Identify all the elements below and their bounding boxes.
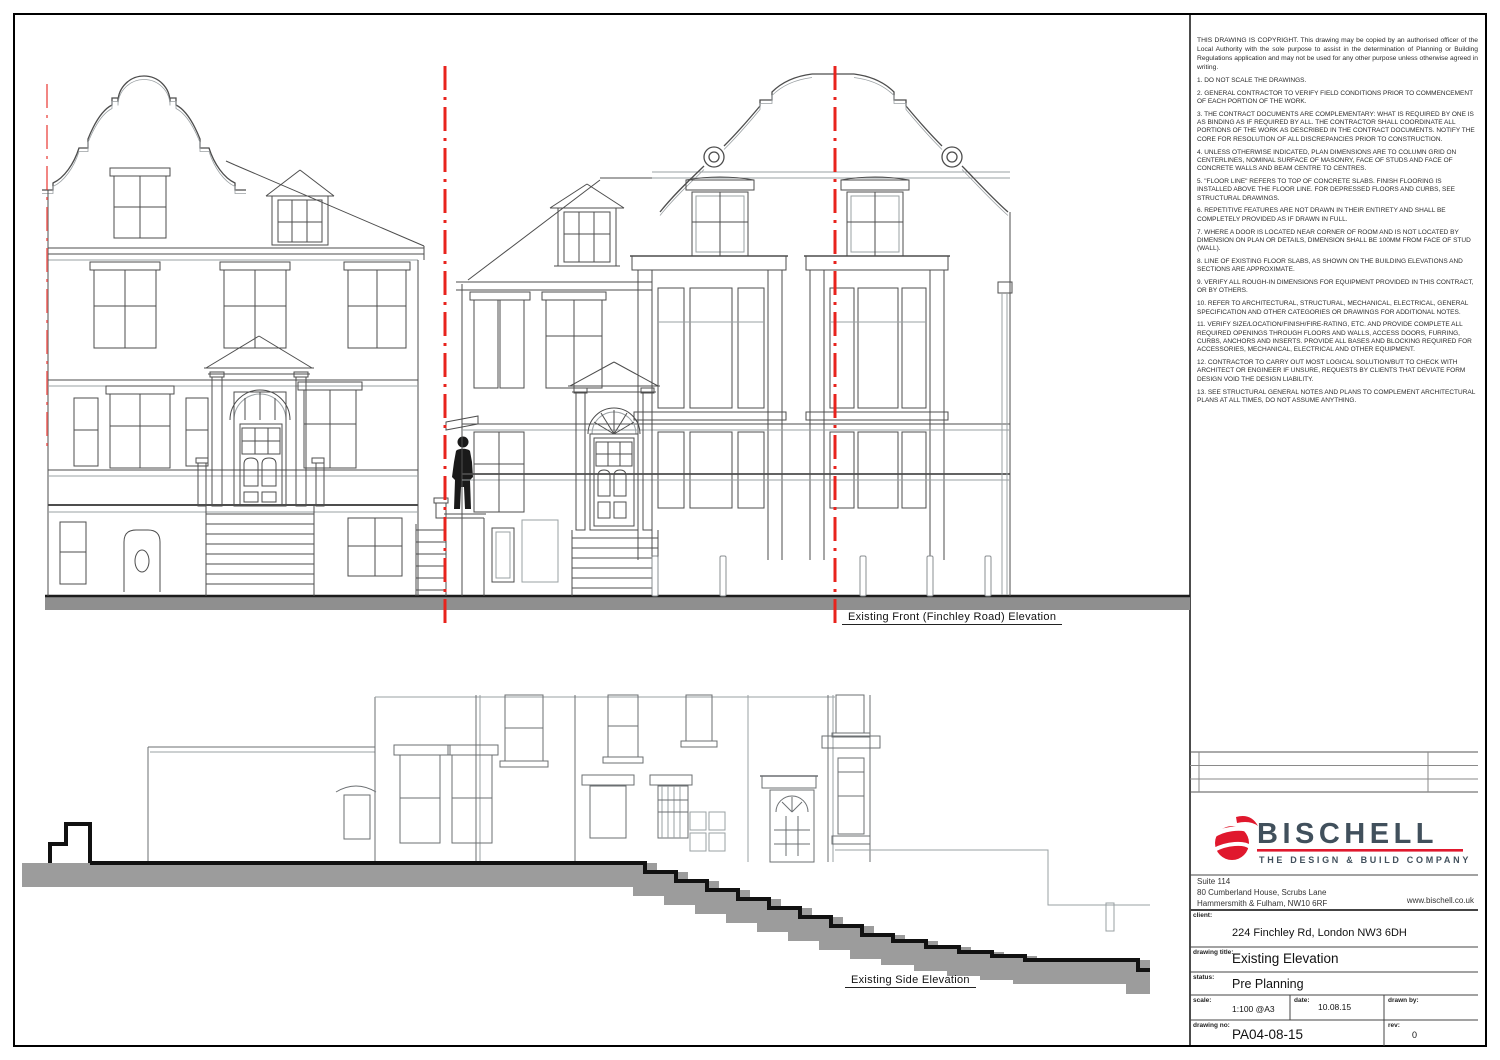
left-building-mid-windows: [74, 382, 362, 468]
status-label: status:: [1193, 974, 1214, 981]
note-item: 9. VERIFY ALL ROUGH-IN DIMENSIONS FOR EQ…: [1197, 279, 1478, 296]
rev-value: 0: [1412, 1030, 1417, 1040]
client-value: 224 Finchley Rd, London NW3 6DH: [1232, 927, 1407, 939]
right-building: [456, 74, 1012, 596]
side-ground-line: [50, 824, 1150, 970]
date-value: 10.08.15: [1318, 1002, 1351, 1012]
front-ground: [45, 596, 1190, 610]
drawing-title-label: drawing title:: [1193, 949, 1233, 956]
bischell-logo-icon: [1213, 816, 1258, 860]
side-elevation-drawing: [22, 695, 1150, 982]
side-elevation-label: Existing Side Elevation: [845, 974, 976, 988]
drawing-no-label: drawing no:: [1193, 1022, 1230, 1029]
drawn-by-label: drawn by:: [1388, 997, 1419, 1004]
company-website: www.bischell.co.uk: [1330, 896, 1474, 905]
status-value: Pre Planning: [1232, 977, 1304, 991]
bischell-logo-tagline: THE DESIGN & BUILD COMPANY: [1259, 855, 1471, 865]
front-elevation-drawing: [42, 66, 1190, 630]
address-line: Suite 114: [1197, 877, 1475, 888]
rev-label: rev:: [1388, 1022, 1400, 1029]
left-building-portico: [196, 336, 324, 596]
drawing-no-value: PA04-08-15: [1232, 1027, 1303, 1042]
note-item: 11. VERIFY SIZE/LOCATION/FINISH/FIRE-RAT…: [1197, 321, 1478, 354]
drawing-title-value: Existing Elevation: [1232, 951, 1339, 966]
red-section-lines: [47, 66, 835, 630]
note-item: 2. GENERAL CONTRACTOR TO VERIFY FIELD CO…: [1197, 90, 1478, 107]
left-building: [42, 76, 424, 596]
copyright-note: THIS DRAWING IS COPYRIGHT. This drawing …: [1197, 37, 1478, 72]
vent-panels: [690, 812, 725, 851]
scale-label: scale:: [1193, 997, 1211, 1004]
scale-value: 1:100 @A3: [1232, 1004, 1275, 1014]
client-label: client:: [1193, 912, 1212, 919]
left-building-upper-windows: [90, 262, 410, 348]
note-item: 3. THE CONTRACT DOCUMENTS ARE COMPLEMENT…: [1197, 111, 1478, 144]
bay-window-right: [806, 270, 948, 560]
note-item: 7. WHERE A DOOR IS LOCATED NEAR CORNER O…: [1197, 229, 1478, 254]
corner-bay: [822, 695, 880, 862]
note-item: 1. DO NOT SCALE THE DRAWINGS.: [1197, 77, 1478, 85]
left-building-basement: [60, 518, 402, 592]
note-item: 8. LINE OF EXISTING FLOOR SLABS, AS SHOW…: [1197, 258, 1478, 275]
note-item: 4. UNLESS OTHERWISE INDICATED, PLAN DIME…: [1197, 149, 1478, 174]
note-item: 10. REFER TO ARCHITECTURAL, STRUCTURAL, …: [1197, 300, 1478, 317]
note-item: 6. REPETITIVE FEATURES ARE NOT DRAWN IN …: [1197, 207, 1478, 224]
note-item: 12. CONTRACTOR TO CARRY OUT MOST LOGICAL…: [1197, 359, 1478, 384]
right-building-portico: [568, 362, 660, 596]
street-bollards: [652, 556, 991, 596]
note-item: 13. SEE STRUCTURAL GENERAL NOTES AND PLA…: [1197, 389, 1478, 406]
note-item: 5. "FLOOR LINE" REFERS TO TOP OF CONCRET…: [1197, 178, 1478, 203]
side-door: [760, 776, 818, 862]
side-ground-fill: [22, 875, 1150, 982]
bay-window-left: [634, 270, 786, 560]
front-elevation-label: Existing Front (Finchley Road) Elevation: [842, 611, 1062, 625]
general-notes-panel: THIS DRAWING IS COPYRIGHT. This drawing …: [1197, 37, 1478, 405]
drawing-sheet: { "labels": { "front": "Existing Front (…: [0, 0, 1500, 1060]
bischell-logo-name: BISCHELL: [1257, 818, 1438, 851]
date-label: date:: [1294, 997, 1310, 1004]
revision-table: [1190, 752, 1478, 792]
